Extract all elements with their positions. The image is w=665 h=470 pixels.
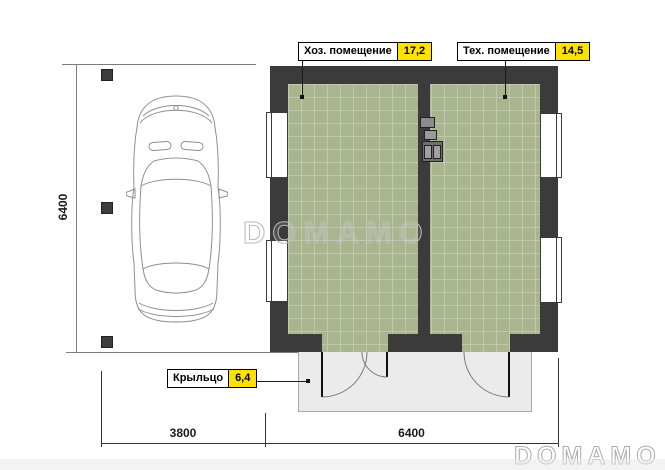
leader-dot-teh	[503, 95, 507, 99]
carport-post-bottom	[101, 336, 113, 348]
interior-floor	[288, 84, 540, 334]
equipment-door-left	[424, 145, 432, 159]
carport-post-middle	[101, 202, 113, 214]
floor-plan-canvas: DOMAMO DOMAMO Хоз. помещение 17,2 Тех. п…	[0, 0, 665, 470]
leader-line-hoz	[302, 60, 303, 97]
room-label-teh: Тех. помещение 14,5	[457, 42, 590, 61]
door-threshold-left	[322, 334, 388, 352]
car-top-view-drawing	[126, 93, 228, 329]
leader-line-teh	[505, 60, 506, 97]
room-label-hoz: Хоз. помещение 17,2	[298, 42, 432, 61]
dim-left-height: 6400	[56, 184, 70, 230]
dim-carport-width: 3800	[101, 426, 265, 440]
porch-slab	[298, 352, 532, 412]
room-area-hoz: 17,2	[398, 42, 432, 61]
equipment-door-right	[433, 145, 441, 159]
carport-roof-edge-bottom	[66, 352, 298, 353]
porch-label: Крыльцо 6,4	[167, 369, 257, 388]
carport-post-top	[101, 69, 113, 81]
window-left-top	[266, 112, 288, 178]
dim-extension-right	[558, 358, 559, 447]
door-threshold-right	[462, 334, 510, 352]
carport-roof-edge-top	[62, 64, 256, 65]
equipment-block-small	[420, 117, 435, 128]
footer-shade	[0, 459, 665, 470]
porch-name: Крыльцо	[167, 369, 229, 388]
window-right-top	[540, 113, 562, 178]
dim-bottom-line	[101, 443, 558, 444]
dim-building-width: 6400	[265, 426, 558, 440]
room-area-teh: 14,5	[556, 42, 590, 61]
room-name-hoz: Хоз. помещение	[298, 42, 398, 61]
watermark-center: DOMAMO	[243, 215, 430, 251]
carport-roof-edge-left	[76, 64, 77, 353]
porch-area: 6,4	[229, 369, 257, 388]
window-right-bottom	[540, 237, 562, 303]
leader-dot-porch	[306, 379, 310, 383]
equipment-block-medium	[424, 130, 437, 140]
leader-line-porch	[257, 381, 309, 382]
leader-dot-hoz	[300, 95, 304, 99]
room-name-teh: Тех. помещение	[457, 42, 556, 61]
